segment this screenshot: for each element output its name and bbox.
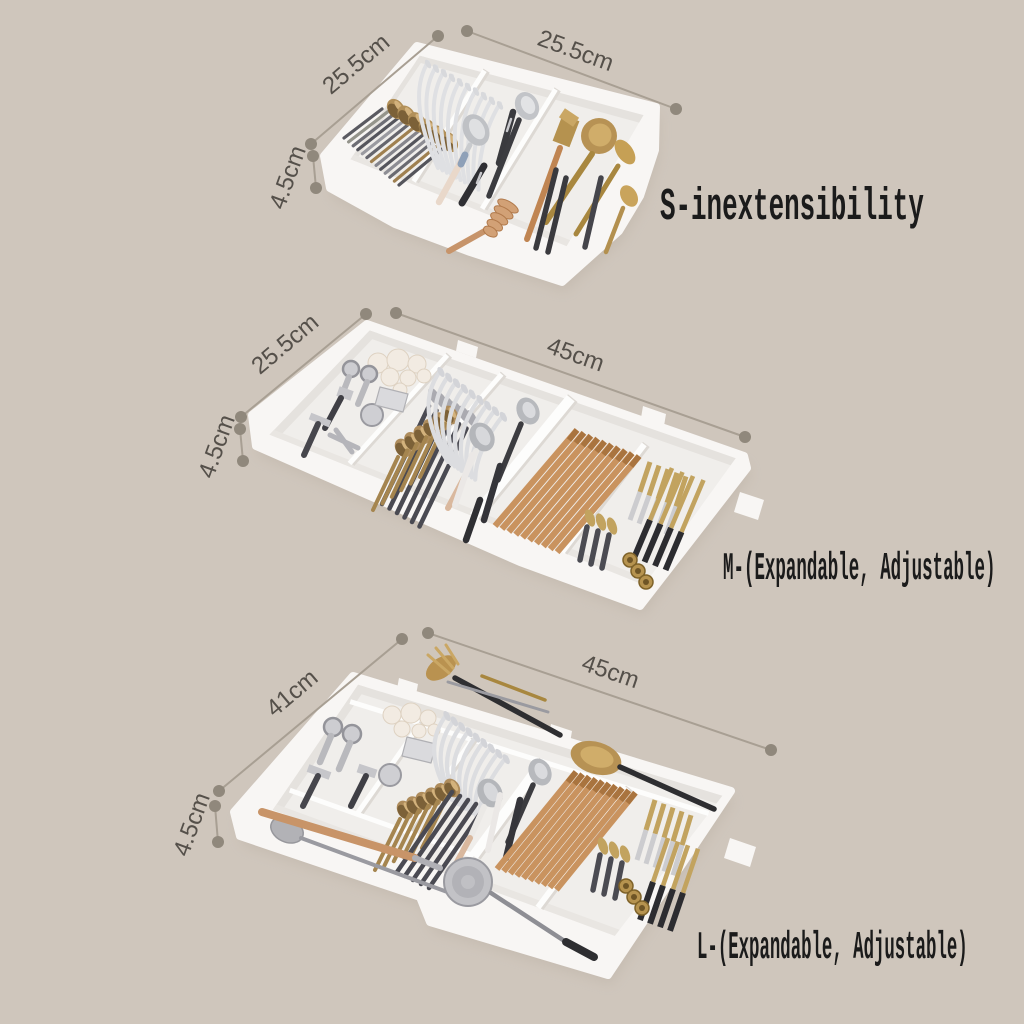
svg-text:L-(Expandable, Adjustable): L-(Expandable, Adjustable)	[697, 927, 968, 971]
svg-text:S-inextensibility: S-inextensibility	[660, 182, 924, 233]
svg-text:M-(Expandable, Adjustable): M-(Expandable, Adjustable)	[723, 548, 995, 592]
